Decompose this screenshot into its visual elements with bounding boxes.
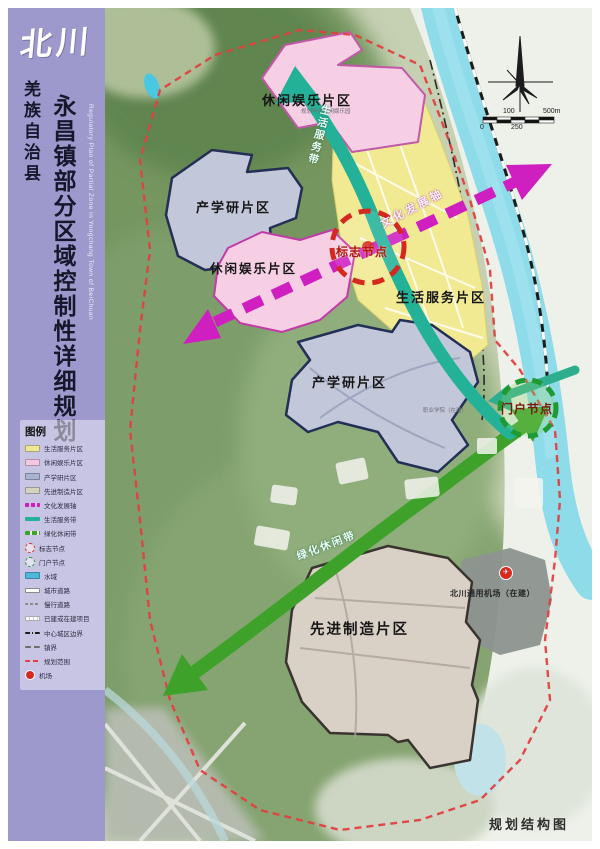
zone-label-research-mid: 产学研片区 [312,372,387,391]
scale-label-500m: 500m [543,108,561,115]
legend-swatch-culture-axis [25,503,40,507]
legend-swatch-water [25,572,40,579]
legend-swatch-plan-scope [25,660,40,663]
legend-item: 绿化休闲带 [25,528,105,538]
legend-swatch-life-area [25,445,40,452]
airport-icon: ✈ [503,568,509,576]
legend-swatch-green-belt [25,531,40,535]
county-title: 羌族自治县 [18,80,43,185]
map-canvas: 休闲娱乐片区 规划特色休闲娱乐园 产学研片区 休闲娱乐片区 生活服务片区 产学研… [105,8,592,841]
node-label-gateway: 门户节点 [501,400,553,417]
scale-label-100: 100 [503,108,515,115]
sidebar: 北川 羌族自治县 永昌镇部分区域控制性详细规划 Regulatory Plan … [8,8,105,841]
zone-label-life-service: 生活服务片区 [396,287,486,306]
map-caption: 规划结构图 [489,814,569,833]
legend-item: 门户节点 [25,557,105,567]
scale-label-250: 250 [511,124,523,131]
legend-item: 镇界 [25,642,105,652]
legend-item: 产学研片区 [25,472,105,482]
legend-item: 生活服务片区 [25,443,105,453]
plan-title-english: Regulatory Plan of Partial Zone in Yongc… [87,104,94,364]
legend-item: 中心城区边界 [25,628,105,638]
legend-swatch-airport [25,670,35,680]
zone-label-leisure-mid: 休闲娱乐片区 [210,258,297,277]
legend-swatch-landmark-node [25,543,35,553]
legend: 图例 生活服务片区 休闲娱乐片区 产学研片区 先进制造片区 文化发展轴 生活服务… [20,420,108,690]
node-label-landmark: 标志节点 [336,243,388,260]
zone-label-research-left: 产学研片区 [196,197,271,216]
legend-item: 生活服务带 [25,514,105,524]
legend-swatch-slow-road [25,603,40,605]
legend-header: 图例 [25,424,105,439]
legend-item: 机场 [25,670,105,680]
college-label: 职业学院（在建） [423,406,467,414]
legend-swatch-built-projects [25,616,40,621]
legend-swatch-center-boundary [25,632,40,634]
beichuan-logo: 北川 [6,15,108,66]
airport-label: 北川通用机场（在建） [450,588,535,599]
legend-item: 已建或在建项目 [25,613,105,623]
legend-swatch-gateway-node [25,557,35,567]
legend-item: 城市道路 [25,585,105,595]
scale-label-0: 0 [480,124,484,131]
legend-item: 水域 [25,571,105,581]
legend-item: 慢行道路 [25,599,105,609]
legend-item: 先进制造片区 [25,486,105,496]
legend-swatch-life-belt [25,517,40,521]
legend-swatch-town-boundary [25,646,40,648]
legend-swatch-leisure-area [25,459,40,466]
legend-item: 标志节点 [25,543,105,553]
legend-item: 休闲娱乐片区 [25,457,105,467]
scale-bar [483,117,554,123]
planning-map-page: 北川 羌族自治县 永昌镇部分区域控制性详细规划 Regulatory Plan … [0,0,600,849]
legend-swatch-manufacturing-area [25,487,40,494]
legend-item: 文化发展轴 [25,500,105,510]
legend-swatch-city-road [25,588,40,593]
legend-swatch-research-area [25,473,40,480]
map-graphics [105,8,592,841]
zone-label-manufacturing: 先进制造片区 [310,618,409,639]
legend-item: 规划范围 [25,656,105,666]
